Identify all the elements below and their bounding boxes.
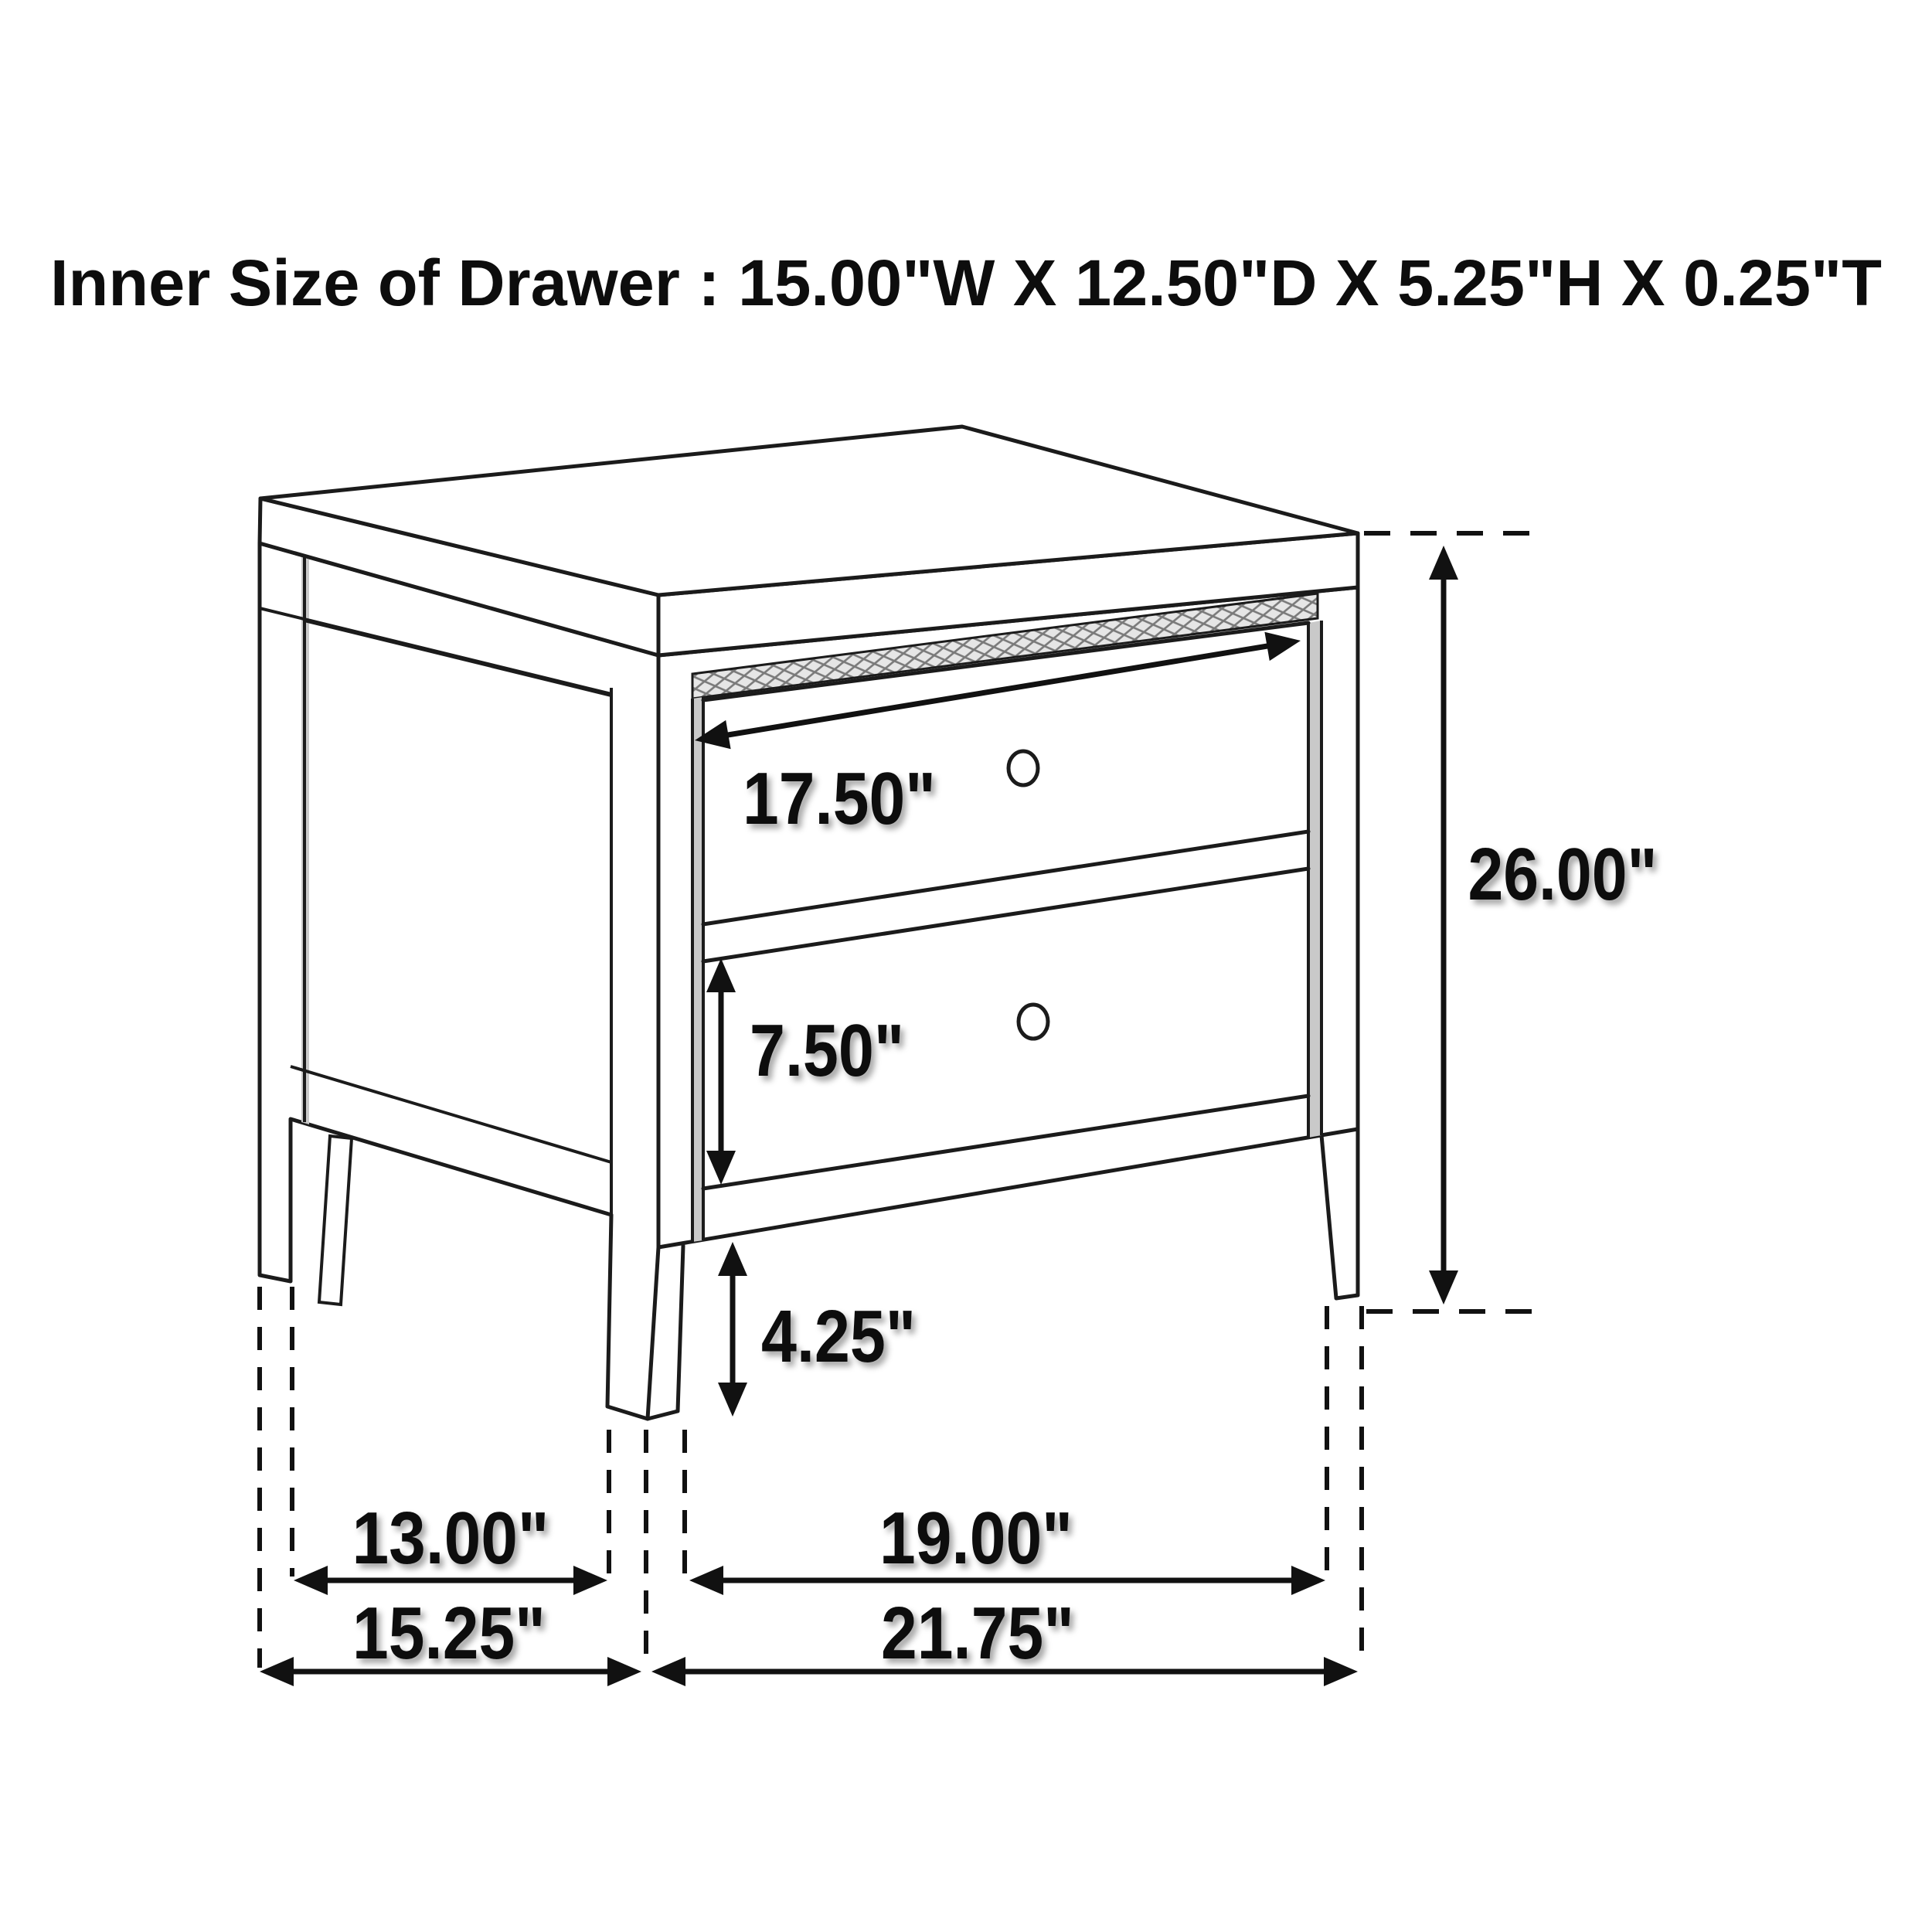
drawer-right-reveal — [1308, 621, 1321, 1138]
page-title: Inner Size of Drawer : 15.00"W X 12.50"D… — [50, 247, 1882, 319]
drawer-left-reveal — [692, 697, 703, 1242]
dim-label-overall-depth: 15.25" — [352, 1592, 546, 1675]
diagram-page: Inner Size of Drawer : 15.00"W X 12.50"D… — [0, 0, 1932, 1932]
dim-label-overall-height: 26.00" — [1468, 833, 1658, 916]
dim-label-overall-width: 21.75" — [881, 1592, 1074, 1675]
dim-label-bottom-drawer-height: 7.50" — [750, 1009, 904, 1092]
dim-label-drawer-face-width: 17.50" — [743, 757, 936, 840]
dim-label-front-leg-spacing: 19.00" — [879, 1497, 1073, 1580]
dim-label-side-leg-spacing: 13.00" — [352, 1497, 549, 1580]
nightstand-dimension-diagram: Inner Size of Drawer : 15.00"W X 12.50"D… — [0, 0, 1932, 1932]
dim-label-leg-height: 4.25" — [761, 1295, 916, 1378]
